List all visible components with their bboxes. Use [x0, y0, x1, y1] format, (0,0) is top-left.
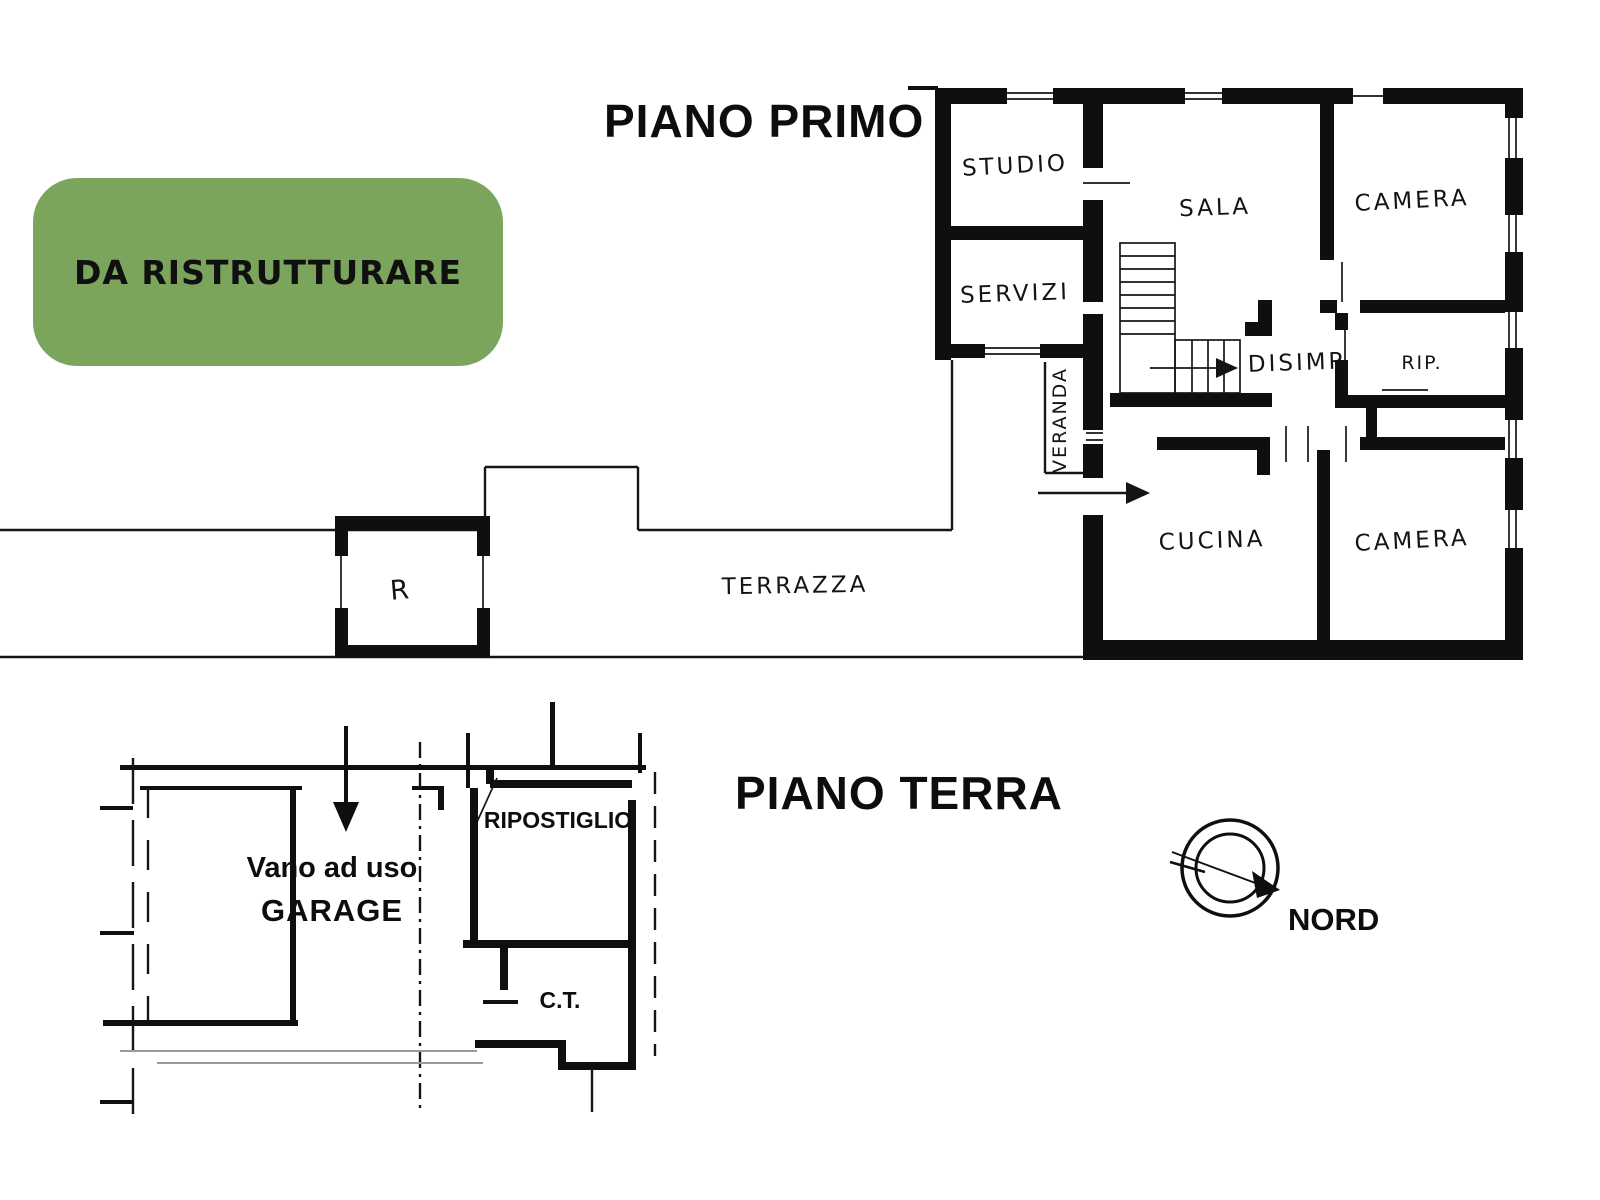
room-label-camera-top: CAMERA [1354, 185, 1470, 217]
room-label-garage-line2: GARAGE [261, 893, 403, 928]
room-label-disimp: DISIMP. [1247, 348, 1352, 378]
room-label-ripostiglio: RIPOSTIGLIO [484, 807, 632, 833]
first-floor-right-wall [1505, 88, 1523, 660]
room-label-r: R [389, 574, 411, 607]
entry-arrow [1038, 482, 1150, 504]
r-room: R [335, 516, 490, 658]
room-label-cucina: CUCINA [1158, 526, 1266, 556]
room-label-rip: RIP. [1401, 352, 1442, 374]
floorplan-drawing: STUDIO SERVIZI SALA CAMERA DISIMP. RIP. … [0, 0, 1600, 1200]
floorplan-page: PIANO PRIMO PIANO TERRA DA RISTRUTTURARE… [0, 0, 1600, 1200]
ct-room [475, 948, 636, 1112]
terrace-outline: TERRAZZA [0, 360, 1083, 657]
room-label-veranda: VERANDA [1049, 367, 1071, 473]
garage-floor-lines [120, 1051, 483, 1063]
room-label-ct: C.T. [540, 987, 581, 1013]
ground-floor-plan: RIPOSTIGLIO Vano ad uso GARAGE C.T. [100, 702, 655, 1118]
room-label-garage-line1: Vano ad uso [247, 852, 418, 884]
room-label-servizi: SERVIZI [960, 279, 1071, 309]
first-floor-bottom-wall [1083, 640, 1523, 660]
room-label-camera-bottom: CAMERA [1354, 525, 1470, 557]
room-label-sala: SALA [1179, 194, 1252, 222]
ripostiglio-room [463, 770, 636, 948]
room-label-studio: STUDIO [961, 150, 1068, 182]
compass-icon [1170, 820, 1280, 916]
garage-arrow [333, 726, 359, 832]
first-floor-top-wall [908, 86, 1522, 104]
first-floor-left-wall [935, 88, 1093, 360]
first-floor-plan: STUDIO SERVIZI SALA CAMERA DISIMP. RIP. … [908, 86, 1523, 660]
room-label-terrazza: TERRAZZA [721, 572, 869, 601]
stairs [1120, 243, 1240, 393]
